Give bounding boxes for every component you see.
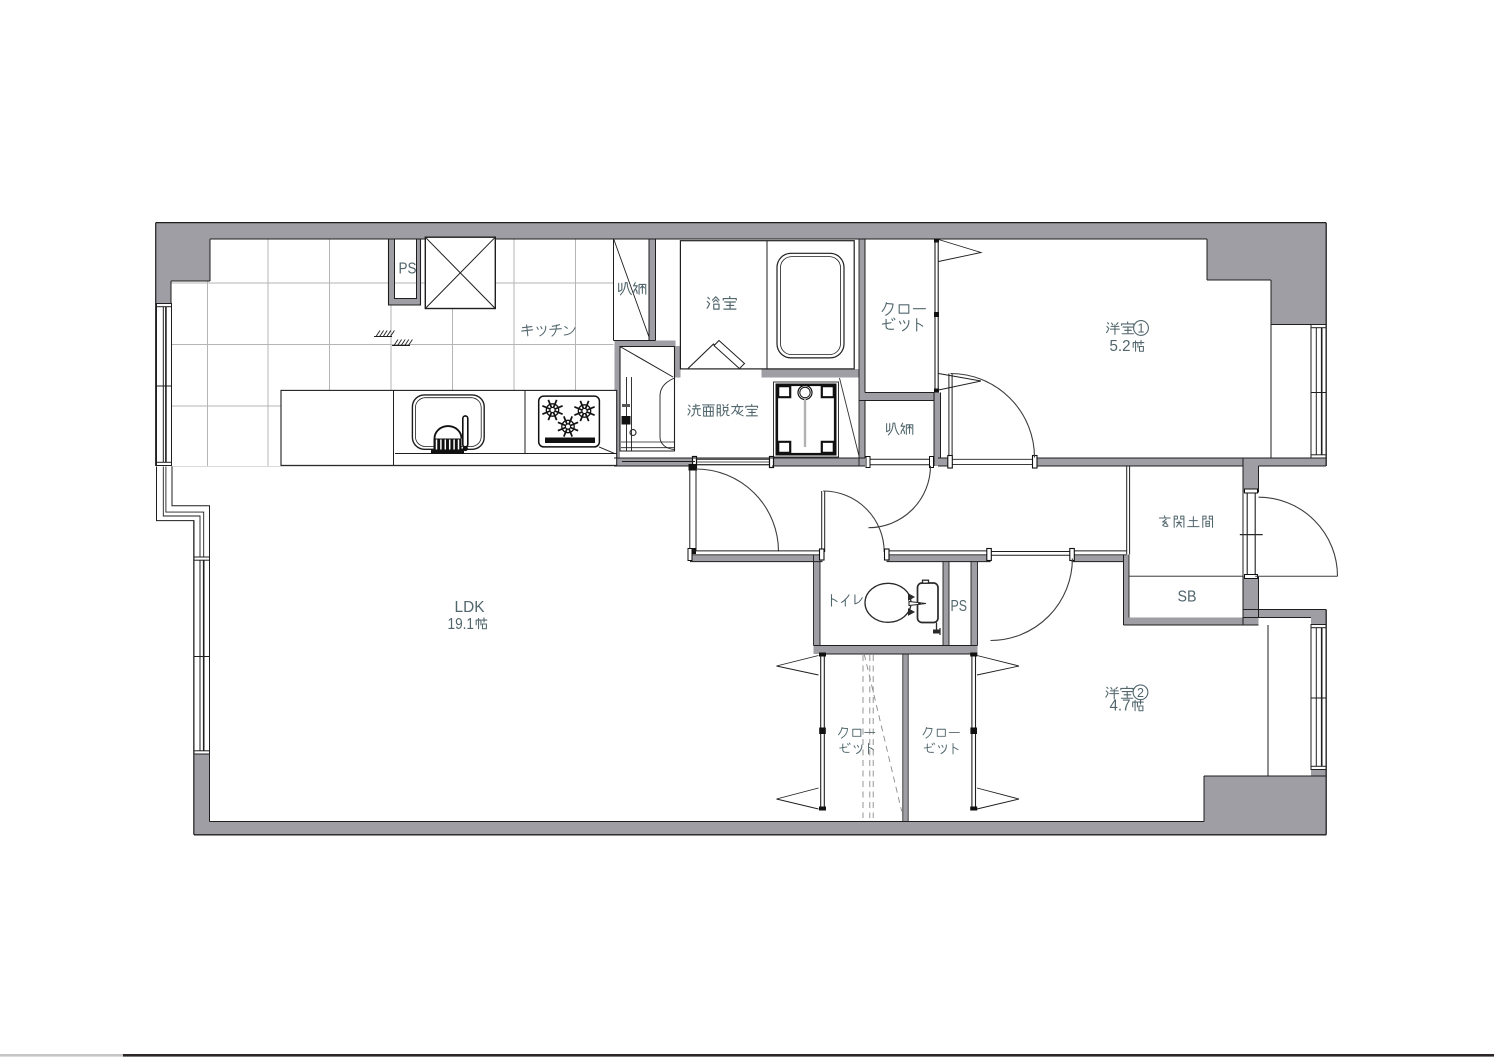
svg-text:5.2: 5.2 <box>1110 338 1131 355</box>
svg-text:2: 2 <box>1137 686 1144 700</box>
svg-text:19.1: 19.1 <box>448 616 475 633</box>
svg-text:LDK: LDK <box>455 599 486 616</box>
svg-text:PS: PS <box>951 598 968 615</box>
svg-text:4.7: 4.7 <box>1110 698 1131 715</box>
svg-text:SB: SB <box>1178 589 1197 606</box>
svg-text:1: 1 <box>1138 322 1145 336</box>
svg-text:PS: PS <box>399 261 417 278</box>
